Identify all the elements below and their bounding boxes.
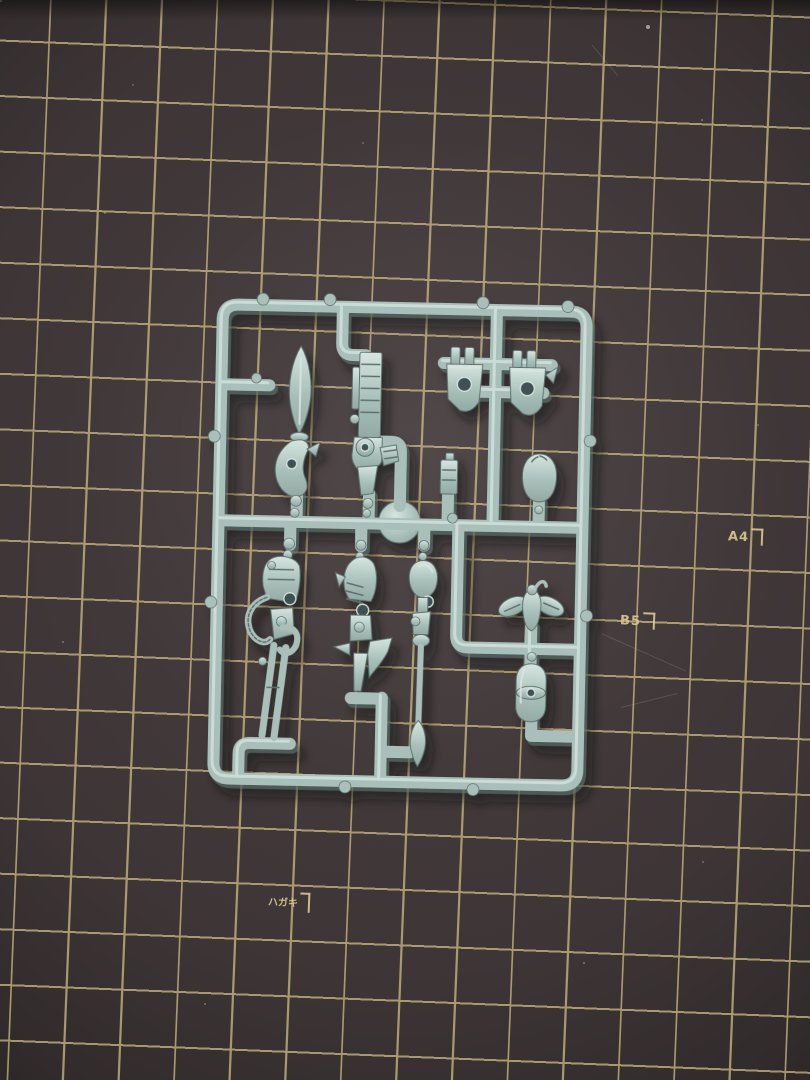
part-ammo-box — [440, 453, 458, 494]
part-ridged-rifle — [333, 540, 394, 692]
part-torso-socket-left — [446, 347, 483, 412]
part-leaf-blade-spear — [274, 345, 322, 517]
photo-scene: A4 B5 ハガキ — [0, 0, 810, 1080]
part-winged-piece — [495, 581, 567, 632]
sprue — [0, 0, 810, 1080]
part-long-rifle — [246, 537, 301, 738]
part-down-spear — [405, 540, 438, 767]
